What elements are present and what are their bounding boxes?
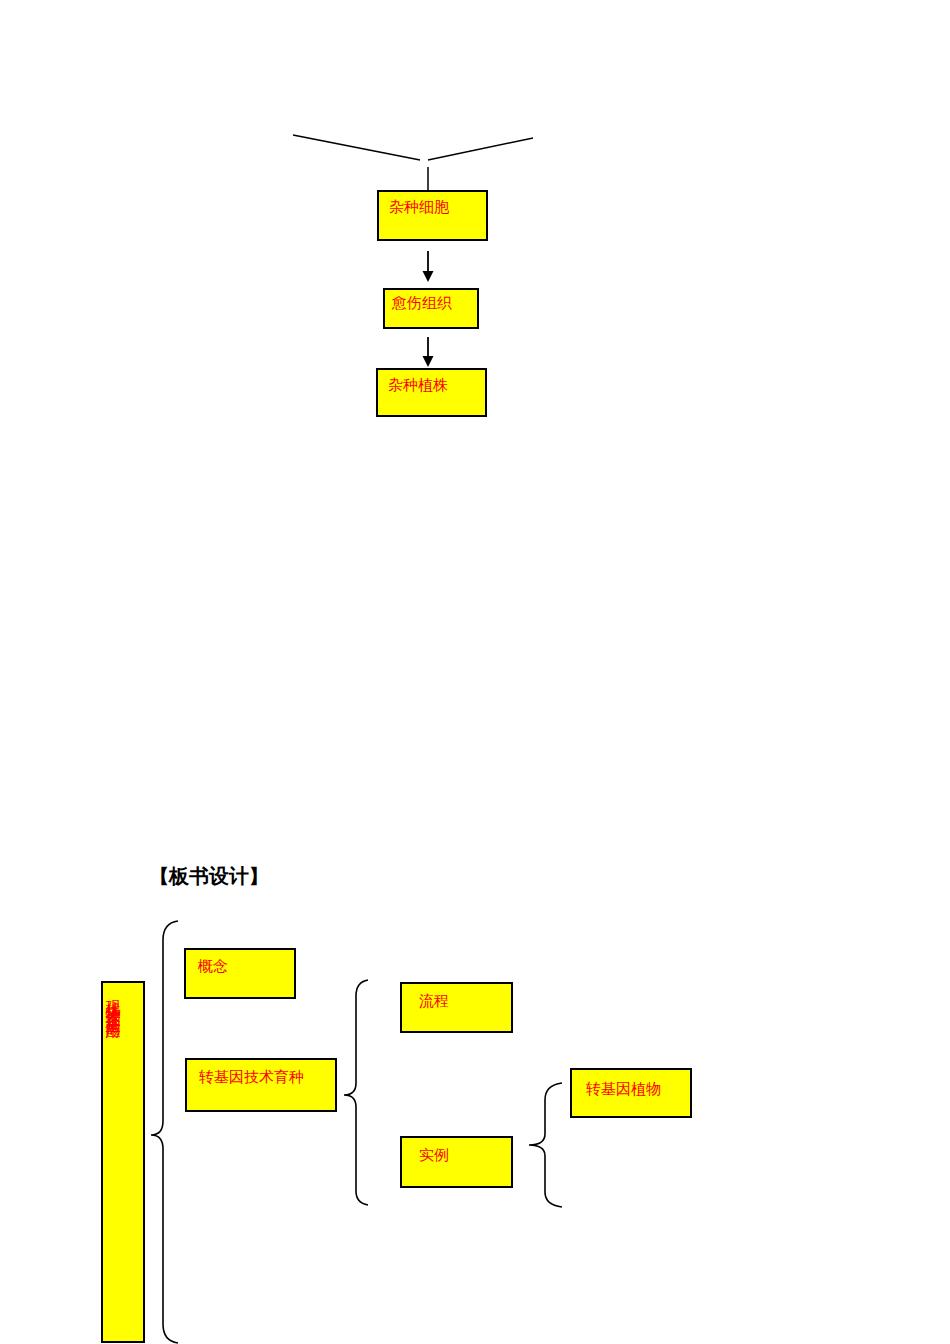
board-node-concept: 概念 xyxy=(184,948,296,999)
board-node-transgenic-plant: 转基因植物 xyxy=(570,1068,692,1118)
brace-root xyxy=(151,921,178,1343)
flow-node-hybrid-cell: 杂种细胞 xyxy=(377,190,488,241)
down-arrow xyxy=(423,251,434,282)
merge-lines xyxy=(293,135,533,190)
board-node-example: 实例 xyxy=(400,1136,513,1188)
document-page: 杂种细胞 愈伤组织 杂种植株 【板书设计】 现代生物技术在育种上的应用 概念 转… xyxy=(0,0,950,1344)
board-root-topic: 现代生物技术在育种上的应用 xyxy=(101,981,145,1343)
section-heading: 【板书设计】 xyxy=(149,863,269,890)
board-node-transgenic-breeding: 转基因技术育种 xyxy=(185,1058,337,1112)
brace-example xyxy=(529,1083,562,1207)
flow-node-hybrid-plant: 杂种植株 xyxy=(376,368,487,417)
board-node-process: 流程 xyxy=(400,982,513,1033)
brace-transgenic-breeding xyxy=(344,980,368,1205)
flow-node-callus: 愈伤组织 xyxy=(383,288,479,329)
down-arrow xyxy=(423,337,434,367)
